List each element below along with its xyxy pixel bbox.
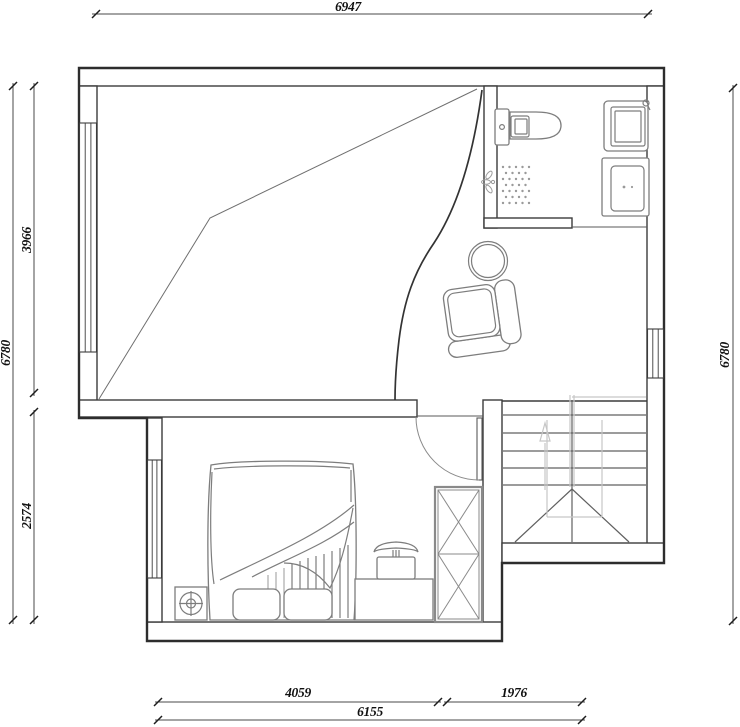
dim-top: 6947 bbox=[92, 0, 652, 18]
double-bed bbox=[208, 461, 356, 620]
washbasin bbox=[604, 100, 650, 151]
dim-bottom-right: 1976 bbox=[443, 685, 586, 706]
dim-bottom-right-label: 1976 bbox=[501, 685, 527, 700]
dim-left-lower-label: 2574 bbox=[19, 503, 34, 530]
toilet bbox=[495, 109, 561, 145]
wall-bedroom-right bbox=[483, 400, 502, 641]
dim-bottom-left-label: 4059 bbox=[284, 685, 311, 700]
armchair bbox=[440, 279, 523, 359]
sloped-ceiling-lines bbox=[99, 89, 477, 399]
wall-bedroom-bottom bbox=[147, 622, 502, 641]
tv-cabinet bbox=[355, 579, 433, 620]
wall-bath-west bbox=[484, 86, 497, 228]
bed-outline bbox=[208, 461, 356, 620]
bedroom bbox=[175, 461, 482, 622]
staircase bbox=[502, 395, 647, 542]
wall-mid-horizontal bbox=[79, 400, 417, 417]
floor-lamp bbox=[175, 587, 207, 620]
wall-step-bottom-right bbox=[502, 543, 664, 563]
dim-bottom-left: 4059 bbox=[154, 685, 442, 706]
dim-left-upper: 3966 bbox=[19, 82, 38, 397]
dim-left-lower: 2574 bbox=[19, 408, 38, 624]
wall-bath-south bbox=[484, 218, 572, 228]
bathroom bbox=[482, 100, 651, 216]
window-right bbox=[648, 329, 664, 378]
dim-left-total-label: 6780 bbox=[0, 340, 13, 366]
wall-right bbox=[647, 86, 664, 563]
tv-body bbox=[377, 557, 415, 579]
shower-dot-grid bbox=[502, 166, 530, 204]
door-swing-arc bbox=[416, 417, 479, 480]
pillow-right bbox=[284, 589, 332, 620]
wall-top bbox=[79, 68, 664, 86]
tv-on-cabinet bbox=[355, 542, 433, 620]
pillow-left bbox=[233, 589, 280, 620]
window-bedroom-left bbox=[148, 460, 162, 578]
dim-bottom-total: 6155 bbox=[154, 704, 586, 724]
armchair-seat bbox=[442, 283, 501, 342]
door-leaf bbox=[477, 418, 482, 480]
dim-top-label: 6947 bbox=[335, 0, 362, 14]
toilet-tank bbox=[495, 109, 509, 145]
dim-bottom-total-label: 6155 bbox=[357, 704, 383, 719]
dim-right: 6780 bbox=[717, 84, 737, 625]
dim-left-total: 6780 bbox=[0, 82, 17, 624]
washing-machine bbox=[602, 158, 649, 216]
floor-plan-svg: 6947 6780 3966 2574 6780 bbox=[0, 0, 740, 727]
wardrobe-x bbox=[435, 487, 482, 622]
bedroom-door bbox=[416, 417, 482, 480]
floor-plan-canvas: 6947 6780 3966 2574 6780 bbox=[0, 0, 740, 727]
dim-left-upper-label: 3966 bbox=[19, 227, 34, 254]
window-left-large bbox=[80, 123, 97, 352]
round-table bbox=[469, 242, 508, 281]
dim-right-label: 6780 bbox=[717, 342, 732, 368]
walls bbox=[79, 68, 664, 641]
